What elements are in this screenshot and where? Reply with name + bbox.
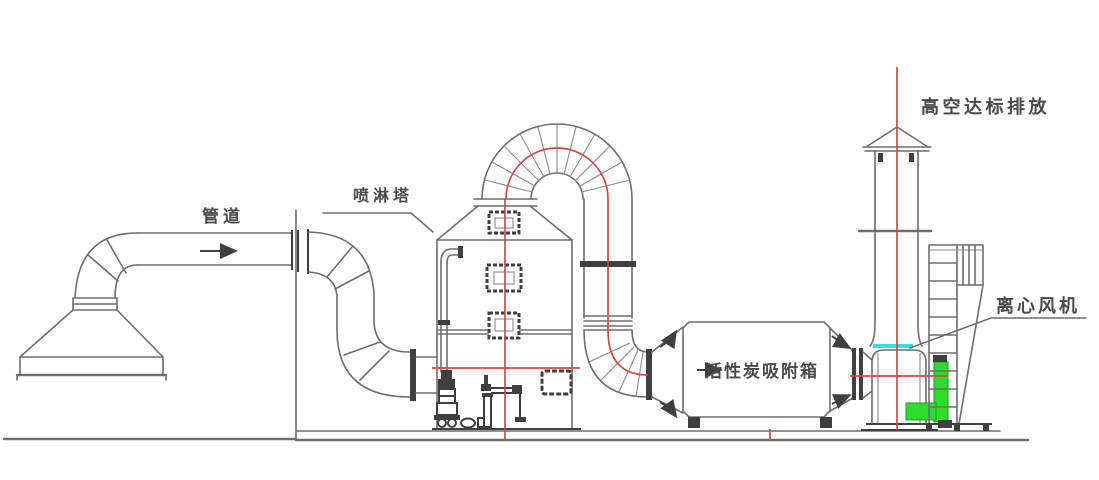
box-foot xyxy=(820,417,832,428)
spray-tower-leader xyxy=(323,213,433,232)
schematic-drawing: 管道 喷淋塔 活性炭吸附箱 离心风机 高空达标排放 xyxy=(0,0,1099,480)
collection-hood xyxy=(17,233,166,380)
fan-leader xyxy=(910,318,1086,348)
box-foot xyxy=(688,417,700,428)
spray-tower-label: 喷淋塔 xyxy=(353,186,413,205)
duct-label: 管道 xyxy=(202,206,244,227)
carbon-box-label: 活性炭吸附箱 xyxy=(705,361,819,382)
s-bend-duct xyxy=(309,232,437,401)
rain-cap xyxy=(866,127,897,147)
inspection-hatch xyxy=(487,265,521,291)
inlet-duct xyxy=(137,210,308,431)
centrifugal-fan xyxy=(861,346,952,430)
u-bend-duct xyxy=(482,124,652,400)
spray-tower xyxy=(432,199,581,429)
emission-label: 高空达标排放 xyxy=(921,96,1050,118)
access-door xyxy=(542,371,571,394)
spray-feed-pipe xyxy=(438,246,463,372)
exhaust-stack xyxy=(859,127,931,346)
circulation-pump xyxy=(434,370,485,428)
fan-label: 离心风机 xyxy=(996,295,1080,317)
inspection-hatch xyxy=(489,212,519,233)
schematic-canvas: 管道 喷淋塔 活性炭吸附箱 离心风机 高空达标排放 xyxy=(0,0,1099,480)
labels: 管道 喷淋塔 活性炭吸附箱 离心风机 高空达标排放 xyxy=(202,96,1086,382)
flow-path-lines xyxy=(432,67,947,440)
drain-piping xyxy=(481,375,526,427)
ground-lines xyxy=(4,431,1028,440)
tower-inlet-flange xyxy=(410,349,416,401)
box-outlet-flange xyxy=(852,348,856,400)
inspection-hatch xyxy=(489,313,519,338)
